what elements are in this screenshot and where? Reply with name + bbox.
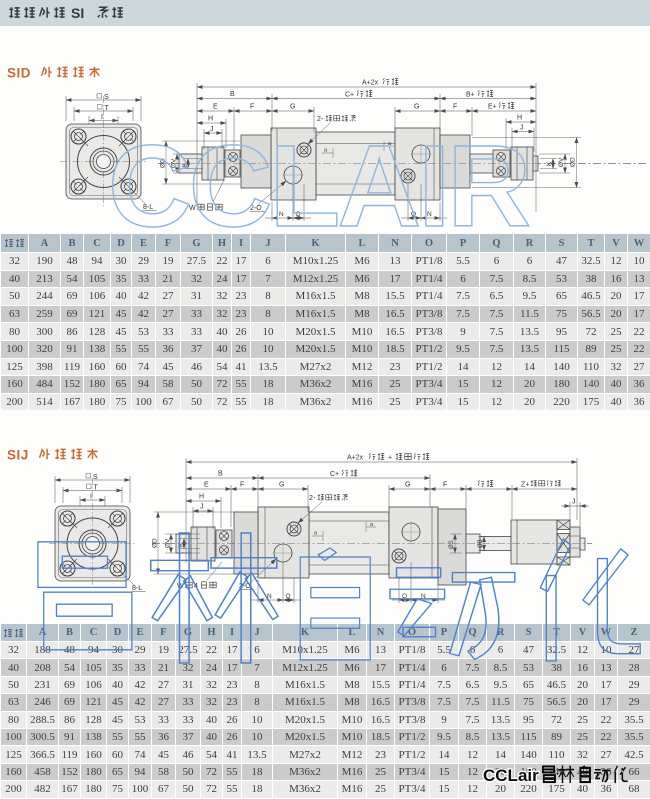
svg-text:C+: C+ — [330, 471, 339, 478]
svg-text:Q: Q — [286, 593, 291, 600]
svg-text:F: F — [250, 104, 254, 111]
svg-text:ØV: ØV — [558, 157, 565, 167]
svg-text:+: + — [388, 455, 392, 462]
svg-text:C+: C+ — [345, 92, 354, 99]
svg-text:K: K — [178, 542, 185, 547]
svg-text:S: S — [104, 94, 109, 101]
svg-text:H: H — [199, 494, 204, 501]
svg-text:CCLAIR: CCLAIR — [108, 121, 529, 251]
svg-text:F: F — [443, 482, 447, 489]
svg-text:B: B — [230, 91, 235, 98]
svg-text:S: S — [93, 474, 98, 481]
svg-text:SID: SID — [7, 66, 31, 81]
svg-text:I: I — [90, 494, 92, 501]
svg-text:Z+: Z+ — [521, 482, 529, 489]
svg-text:B+: B+ — [466, 92, 475, 99]
svg-text:ØV: ØV — [165, 538, 172, 548]
svg-text:ØS: ØS — [449, 540, 455, 549]
svg-text:E+: E+ — [488, 104, 497, 111]
svg-text:SI: SI — [71, 5, 84, 21]
svg-text:G: G — [414, 104, 419, 111]
svg-text:2-: 2- — [309, 495, 316, 502]
svg-text:J: J — [572, 499, 576, 506]
svg-text:E: E — [204, 482, 209, 489]
svg-text:T: T — [94, 485, 99, 492]
svg-text:J: J — [200, 504, 204, 511]
svg-text:E: E — [213, 104, 218, 111]
svg-text:8-L: 8-L — [132, 585, 142, 592]
svg-text:G: G — [290, 104, 295, 111]
svg-text:F: F — [240, 482, 244, 489]
svg-text:A+2x: A+2x — [347, 455, 364, 462]
svg-text:CCLair: CCLair — [483, 766, 539, 785]
svg-text:ØD: ØD — [570, 157, 577, 167]
svg-text:ØD: ØD — [152, 538, 159, 548]
svg-text:SIJ: SIJ — [7, 448, 29, 463]
svg-text:T: T — [105, 105, 110, 112]
svg-text:B: B — [218, 471, 223, 478]
svg-text:G: G — [405, 482, 410, 489]
svg-text:I: I — [101, 114, 103, 121]
svg-text:G: G — [279, 482, 284, 489]
svg-text:A+2x: A+2x — [362, 80, 379, 87]
svg-text:F: F — [453, 104, 457, 111]
